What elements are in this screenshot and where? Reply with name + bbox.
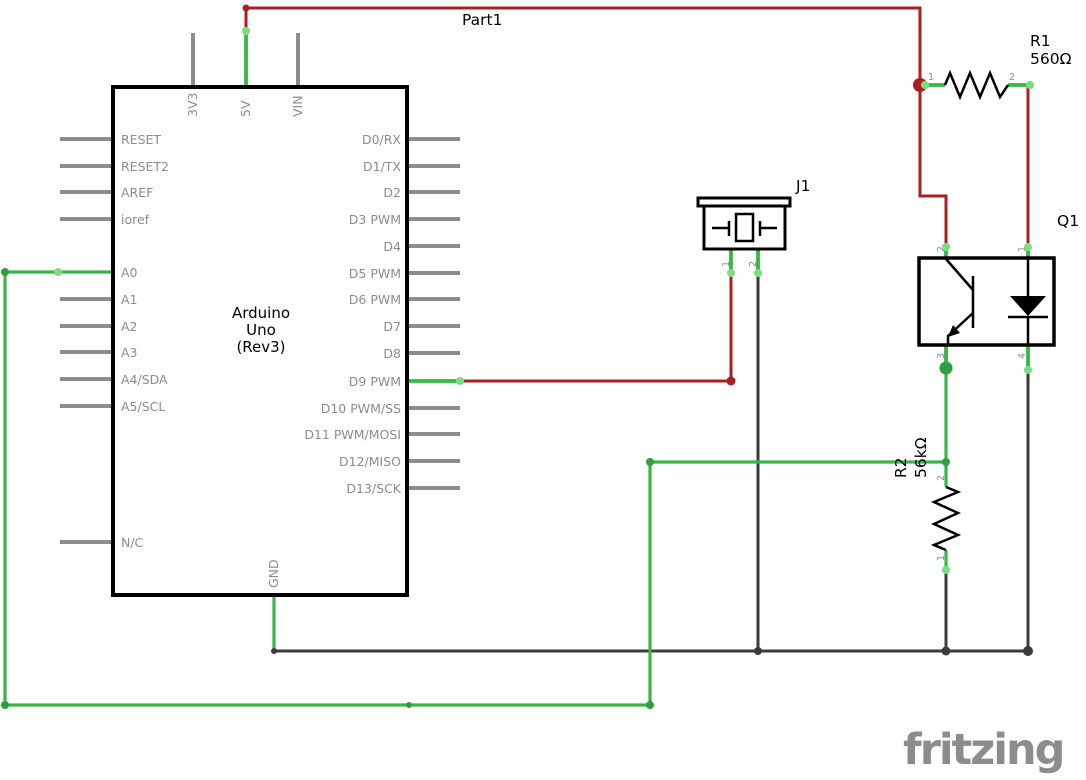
pin-label-3v3: 3V3: [185, 93, 200, 117]
pin-label-ioref: ioref: [121, 212, 150, 227]
q1-pin4-number: 4: [1017, 353, 1028, 359]
pin-label-d13: D13/SCK: [346, 481, 401, 496]
pin-tip-5v[interactable]: [242, 27, 250, 35]
resistor-r1[interactable]: R1 560Ω 1 2: [925, 32, 1072, 97]
pin-tip-q1-4[interactable]: [1024, 366, 1032, 374]
fritzing-logo: fritzing: [903, 725, 1063, 775]
bend-dot-riser-top[interactable]: [646, 458, 654, 466]
r2-zigzag[interactable]: [934, 487, 958, 550]
pin-label-d8: D8: [383, 346, 401, 361]
pin-tip-a0[interactable]: [54, 268, 62, 276]
bend-dot-bottom-mid[interactable]: [406, 702, 412, 708]
junction-dot-r2-gnd[interactable]: [942, 647, 951, 656]
pin-label-d10: D10 PWM/SS: [321, 401, 401, 416]
optocoupler-q1[interactable]: Q1 2 1 3 4: [919, 212, 1079, 371]
pin-tip-j1-2[interactable]: [754, 269, 762, 277]
pin-label-reset2: RESET2: [121, 159, 169, 174]
arduino-name-line3: (Rev3): [236, 338, 285, 356]
pin-label-d0: D0/RX: [362, 132, 401, 147]
pin-label-d4: D4: [383, 239, 401, 254]
pin-label-d2: D2: [383, 185, 401, 200]
r2-designator[interactable]: R2: [892, 457, 910, 478]
connector-j1[interactable]: J1 1 2: [698, 177, 810, 275]
pin-label-a3: A3: [121, 345, 138, 360]
r2-value[interactable]: 56kΩ: [912, 437, 930, 478]
pin-label-d12: D12/MISO: [339, 454, 401, 469]
pin-tip-r1-2[interactable]: [1026, 81, 1034, 89]
r2-pin2-number: 2: [936, 475, 947, 481]
pin-label-nc: N/C: [121, 535, 144, 550]
pin-label-a4: A4/SDA: [121, 372, 168, 387]
pin-label-gnd: GND: [266, 559, 281, 588]
pin-label-a2: A2: [121, 319, 138, 334]
bend-dot-5v-corner[interactable]: [243, 5, 250, 12]
bend-dot-a0-left[interactable]: [1, 268, 9, 276]
pin-label-d5: D5 PWM: [349, 266, 401, 281]
resistor-r2[interactable]: R2 56kΩ 2 1: [892, 437, 958, 561]
q1-pin3-number: 3: [936, 353, 947, 359]
bend-dot-bottom-left[interactable]: [1, 701, 9, 709]
pin-label-d3: D3 PWM: [349, 212, 401, 227]
pin-label-d7: D7: [383, 319, 401, 334]
pin-label-d6: D6 PWM: [349, 292, 401, 307]
r1-pin1-number: 1: [928, 72, 934, 83]
pin-label-a0: A0: [121, 265, 138, 280]
pin-tip-q1-2[interactable]: [942, 243, 950, 251]
pin-tip-d9[interactable]: [456, 377, 464, 385]
j1-crystal-rect: [736, 214, 753, 241]
j1-designator[interactable]: J1: [795, 177, 810, 195]
pin-tip-j1-1[interactable]: [727, 269, 735, 277]
wire-r1pin1-to-q1pin2[interactable]: [920, 85, 946, 248]
schematic-canvas: Part1 Arduino Uno (Rev3) RESET RESET2 AR…: [0, 0, 1086, 780]
pin-label-a5: A5/SCL: [121, 399, 165, 414]
junction-dot-q1-pin3[interactable]: [940, 362, 953, 375]
r1-value[interactable]: 560Ω: [1030, 50, 1072, 68]
r2-pin1-number: 1: [936, 555, 947, 561]
pin-label-d11: D11 PWM/MOSI: [304, 427, 401, 442]
q1-designator[interactable]: Q1: [1057, 212, 1079, 230]
sense-riser-wire[interactable]: [650, 462, 946, 705]
arduino-name-line2: Uno: [246, 321, 276, 339]
junction-dot-r2-pin2[interactable]: [942, 458, 950, 466]
pin-label-reset: RESET: [121, 132, 161, 147]
r1-designator[interactable]: R1: [1030, 32, 1051, 50]
pin-tip-r2-1[interactable]: [942, 566, 950, 574]
pin-label-aref: AREF: [121, 185, 153, 200]
d9-signal-net-wires[interactable]: [460, 275, 731, 381]
wire-5v-to-r1[interactable]: [246, 8, 920, 85]
bend-dot-d9-corner[interactable]: [727, 377, 736, 386]
junction-dot-q1-gnd[interactable]: [1023, 646, 1033, 656]
arduino-name-line1: Arduino: [232, 304, 290, 322]
pin-tip-r1-1[interactable]: [921, 81, 929, 89]
pin-label-5v: 5V: [238, 100, 253, 117]
j1-pin1-number: 1: [721, 261, 732, 267]
wire-d9-to-j1pin1[interactable]: [460, 275, 731, 381]
j1-pin2-number: 2: [748, 261, 759, 267]
bend-dot-riser-bottom[interactable]: [646, 701, 654, 709]
pin-label-d9: D9 PWM: [349, 374, 401, 389]
r1-pin2-number: 2: [1009, 72, 1015, 83]
arduino-component[interactable]: Part1 Arduino Uno (Rev3) RESET RESET2 AR…: [60, 11, 502, 595]
pin-label-d1: D1/TX: [363, 159, 401, 174]
junction-dot-j1-gnd[interactable]: [754, 647, 762, 655]
pin-label-vin: VIN: [290, 95, 305, 117]
pin-label-a1: A1: [121, 292, 138, 307]
bend-dot-gnd-corner[interactable]: [271, 648, 277, 654]
pin-tip-q1-1[interactable]: [1024, 243, 1032, 251]
arduino-part-label[interactable]: Part1: [462, 11, 502, 29]
r1-zigzag[interactable]: [945, 73, 1008, 97]
